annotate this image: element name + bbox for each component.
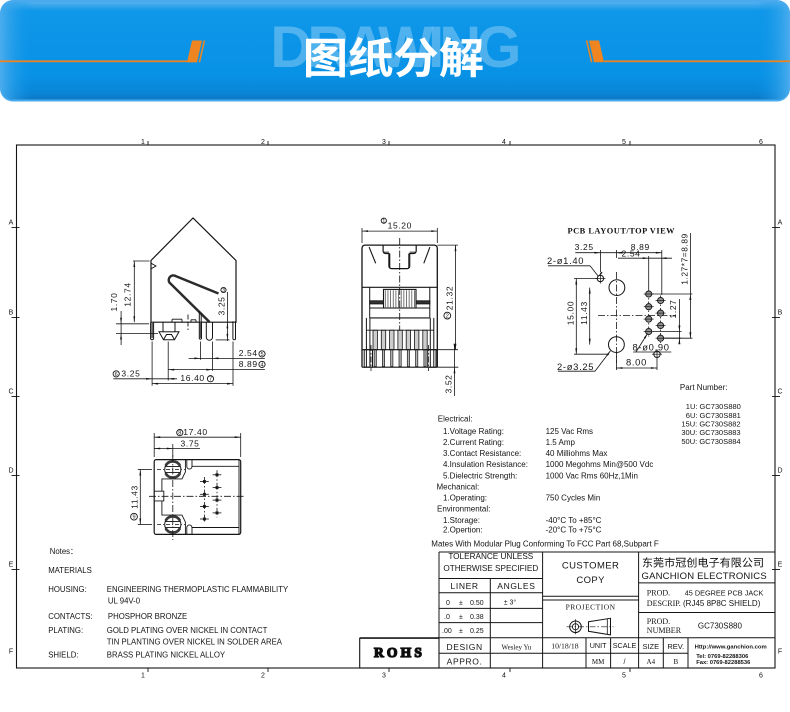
- svg-text:-20°C To +75°C: -20°C To +75°C: [546, 526, 602, 535]
- svg-text:CUSTOMER: CUSTOMER: [562, 561, 619, 572]
- svg-text:5: 5: [260, 352, 263, 358]
- svg-text:UNIT: UNIT: [590, 641, 607, 650]
- svg-text:125 Vac Rms: 125 Vac Rms: [546, 427, 593, 436]
- svg-text:1: 1: [382, 219, 385, 225]
- svg-text:±: ±: [459, 628, 463, 635]
- svg-text:D: D: [777, 468, 782, 475]
- svg-text:SCALE: SCALE: [613, 641, 637, 650]
- svg-text:E: E: [9, 562, 14, 569]
- svg-text:1: 1: [141, 673, 145, 680]
- svg-text:4: 4: [502, 673, 506, 680]
- svg-text:0: 0: [446, 600, 450, 607]
- svg-text:1.Operating:: 1.Operating:: [443, 494, 487, 503]
- svg-text:±: ±: [459, 600, 463, 607]
- svg-text:0.25: 0.25: [470, 628, 484, 635]
- svg-text:2: 2: [261, 139, 265, 146]
- svg-text:MATERIALS: MATERIALS: [48, 566, 92, 575]
- svg-text:Mechanical:: Mechanical:: [437, 482, 480, 491]
- svg-text:750 Cycles Min: 750 Cycles Min: [546, 494, 601, 503]
- svg-text:8-ø0.90: 8-ø0.90: [633, 342, 670, 353]
- svg-text:1.27*7=8.89: 1.27*7=8.89: [679, 233, 689, 285]
- svg-text:ENGINEERING THERMOPLASTIC FLAM: ENGINEERING THERMOPLASTIC FLAMMABILITY: [107, 585, 289, 594]
- svg-text:A4: A4: [647, 658, 656, 666]
- svg-text:50U: GC730S884: 50U: GC730S884: [681, 437, 740, 446]
- svg-text:0.50: 0.50: [470, 600, 484, 607]
- svg-text:PLATING:: PLATING:: [48, 626, 83, 635]
- svg-text:3: 3: [382, 139, 386, 146]
- svg-text:1.Voltage Rating:: 1.Voltage Rating:: [443, 427, 504, 436]
- svg-text:4.Insulation Resistance:: 4.Insulation Resistance:: [443, 460, 528, 469]
- svg-text:PROD.: PROD.: [647, 617, 670, 626]
- svg-text:HOUSING:: HOUSING:: [48, 585, 87, 594]
- svg-text:B: B: [778, 310, 783, 317]
- svg-text:3.25: 3.25: [575, 242, 594, 252]
- svg-text:BRASS PLATING NICKEL ALLOY: BRASS PLATING NICKEL ALLOY: [107, 650, 226, 659]
- svg-text:2: 2: [446, 314, 449, 320]
- svg-text:MM: MM: [592, 658, 605, 666]
- svg-text:DESIGN: DESIGN: [446, 642, 482, 652]
- svg-text:6U: GC730S881: 6U: GC730S881: [686, 411, 741, 420]
- svg-text:REV.: REV.: [667, 642, 684, 651]
- svg-text:6: 6: [759, 673, 763, 680]
- svg-text:Electrical:: Electrical:: [438, 414, 473, 423]
- svg-text:B: B: [9, 310, 14, 317]
- svg-text:APPRO.: APPRO.: [447, 657, 483, 667]
- svg-text:10/18/18: 10/18/18: [551, 642, 578, 651]
- svg-text:PCB LAYOUT/TOP VIEW: PCB LAYOUT/TOP VIEW: [568, 227, 676, 236]
- svg-text:F: F: [778, 649, 782, 656]
- svg-text:1.27: 1.27: [668, 299, 678, 318]
- svg-text:2.54: 2.54: [621, 249, 640, 259]
- svg-text:Wesley Yu: Wesley Yu: [502, 643, 532, 651]
- svg-text:16.40: 16.40: [180, 373, 204, 383]
- svg-text:A: A: [778, 220, 783, 227]
- svg-text:7: 7: [209, 377, 212, 383]
- svg-text:3.Contact Resistance:: 3.Contact Resistance:: [443, 449, 521, 458]
- svg-text:TIN PLANTING OVER NICKEL IN SO: TIN PLANTING OVER NICKEL IN SOLDER AREA: [107, 637, 283, 646]
- svg-text:SIZE: SIZE: [642, 642, 659, 651]
- svg-text:/: /: [624, 659, 626, 666]
- svg-text:OTHERWISE SPECIFIED: OTHERWISE SPECIFIED: [443, 564, 538, 573]
- svg-text:ANGLES: ANGLES: [497, 581, 535, 591]
- svg-text:12.74: 12.74: [123, 282, 133, 306]
- svg-text:15.00: 15.00: [566, 301, 576, 325]
- svg-text:6: 6: [759, 139, 763, 146]
- svg-text:Environmental:: Environmental:: [437, 505, 490, 514]
- svg-text:2.Opertion:: 2.Opertion:: [443, 526, 483, 535]
- svg-text:-40°C To +85°C: -40°C To +85°C: [546, 516, 602, 525]
- svg-text:ROHS: ROHS: [374, 645, 425, 660]
- svg-text:GOLD PLATING OVER NICKEL IN CO: GOLD PLATING OVER NICKEL IN CONTACT: [107, 626, 268, 635]
- svg-text:1.70: 1.70: [109, 292, 119, 311]
- svg-text:1.Storage:: 1.Storage:: [443, 516, 480, 525]
- svg-text:Part Number:: Part Number:: [680, 383, 728, 392]
- svg-text:LINER: LINER: [451, 581, 479, 591]
- svg-text:15U: GC730S882: 15U: GC730S882: [681, 420, 740, 429]
- svg-text:9: 9: [132, 515, 135, 521]
- svg-text:F: F: [9, 649, 13, 656]
- svg-text:2.Current Rating:: 2.Current Rating:: [443, 438, 504, 447]
- svg-text:5: 5: [622, 673, 626, 680]
- svg-text:.00: .00: [442, 628, 452, 635]
- svg-text:C: C: [8, 389, 13, 396]
- svg-text:30U: GC730S883: 30U: GC730S883: [681, 428, 740, 437]
- svg-text:5: 5: [622, 139, 626, 146]
- svg-text:SHIELD:: SHIELD:: [48, 650, 78, 659]
- svg-text:3.25: 3.25: [217, 296, 227, 315]
- svg-text:.0: .0: [444, 614, 450, 621]
- svg-text:8.89: 8.89: [239, 359, 258, 369]
- svg-text:2: 2: [261, 673, 265, 680]
- svg-text:Mates With Modular Plug Confor: Mates With Modular Plug Conforming To FC…: [431, 539, 659, 548]
- svg-text:3.52: 3.52: [444, 374, 454, 393]
- svg-text:6: 6: [115, 372, 118, 378]
- svg-text:21.32: 21.32: [445, 286, 455, 310]
- svg-text:1000 Vac Rms 60Hz,1Min: 1000 Vac Rms 60Hz,1Min: [546, 471, 638, 480]
- svg-text:3: 3: [382, 673, 386, 680]
- svg-text:C: C: [777, 389, 782, 396]
- svg-text:8: 8: [178, 431, 181, 437]
- svg-text:2-ø3.25: 2-ø3.25: [557, 361, 594, 372]
- svg-text:DESCRIP.: DESCRIP.: [647, 599, 681, 608]
- svg-text:GANCHION ELECTRONICS: GANCHION ELECTRONICS: [642, 571, 767, 582]
- svg-text:D: D: [8, 468, 13, 475]
- svg-text:3.75: 3.75: [181, 439, 200, 449]
- svg-text:GC730S880: GC730S880: [698, 622, 743, 631]
- svg-text:CONTACTS:: CONTACTS:: [48, 612, 92, 621]
- svg-text:3: 3: [222, 288, 225, 294]
- svg-text:15.20: 15.20: [388, 220, 412, 230]
- svg-text:3.25: 3.25: [121, 369, 140, 379]
- svg-text:1: 1: [141, 139, 145, 146]
- svg-text:4: 4: [502, 139, 506, 146]
- svg-text:4: 4: [260, 362, 263, 368]
- svg-text:40 Milliohms Max: 40 Milliohms Max: [546, 449, 608, 458]
- svg-text:A: A: [9, 220, 14, 227]
- svg-text:0.38: 0.38: [470, 614, 484, 621]
- svg-text:Fax: 0769-82288536: Fax: 0769-82288536: [696, 660, 751, 666]
- svg-text:NUMBER: NUMBER: [647, 626, 682, 635]
- svg-text:TOLERANCE UNLESS: TOLERANCE UNLESS: [448, 552, 533, 561]
- svg-text:Notes：: Notes：: [50, 547, 78, 556]
- svg-text:5.Dielectric Strength:: 5.Dielectric Strength:: [443, 471, 517, 480]
- svg-text:11.43: 11.43: [129, 485, 139, 509]
- svg-text:1000 Megohms Min@500 Vdc: 1000 Megohms Min@500 Vdc: [546, 460, 654, 469]
- svg-text:E: E: [778, 562, 783, 569]
- svg-text:45 DEGREE PCB JACK: 45 DEGREE PCB JACK: [685, 589, 764, 598]
- svg-text:8.00: 8.00: [626, 357, 647, 368]
- svg-text:Http://www.ganchion.com: Http://www.ganchion.com: [695, 644, 767, 650]
- svg-text:17.40: 17.40: [183, 427, 207, 437]
- svg-text:11.43: 11.43: [579, 301, 589, 325]
- svg-text:B: B: [673, 658, 678, 666]
- svg-text:UL 94V-0: UL 94V-0: [108, 596, 141, 605]
- svg-text:1U: GC730S880: 1U: GC730S880: [686, 402, 741, 411]
- svg-text:± 3°: ± 3°: [504, 598, 517, 606]
- svg-text:1.5 Amp: 1.5 Amp: [546, 438, 576, 447]
- svg-text:2-ø1.40: 2-ø1.40: [547, 255, 584, 266]
- svg-text:(RJ45 8P8C SHIELD): (RJ45 8P8C SHIELD): [683, 599, 761, 608]
- svg-text:PROD.: PROD.: [647, 589, 670, 598]
- svg-text:2.54: 2.54: [239, 348, 258, 358]
- svg-text:±: ±: [459, 614, 463, 621]
- svg-text:PHOSPHOR BRONZE: PHOSPHOR BRONZE: [108, 612, 187, 621]
- svg-text:COPY: COPY: [576, 575, 605, 586]
- svg-text:PROJECTION: PROJECTION: [566, 603, 616, 612]
